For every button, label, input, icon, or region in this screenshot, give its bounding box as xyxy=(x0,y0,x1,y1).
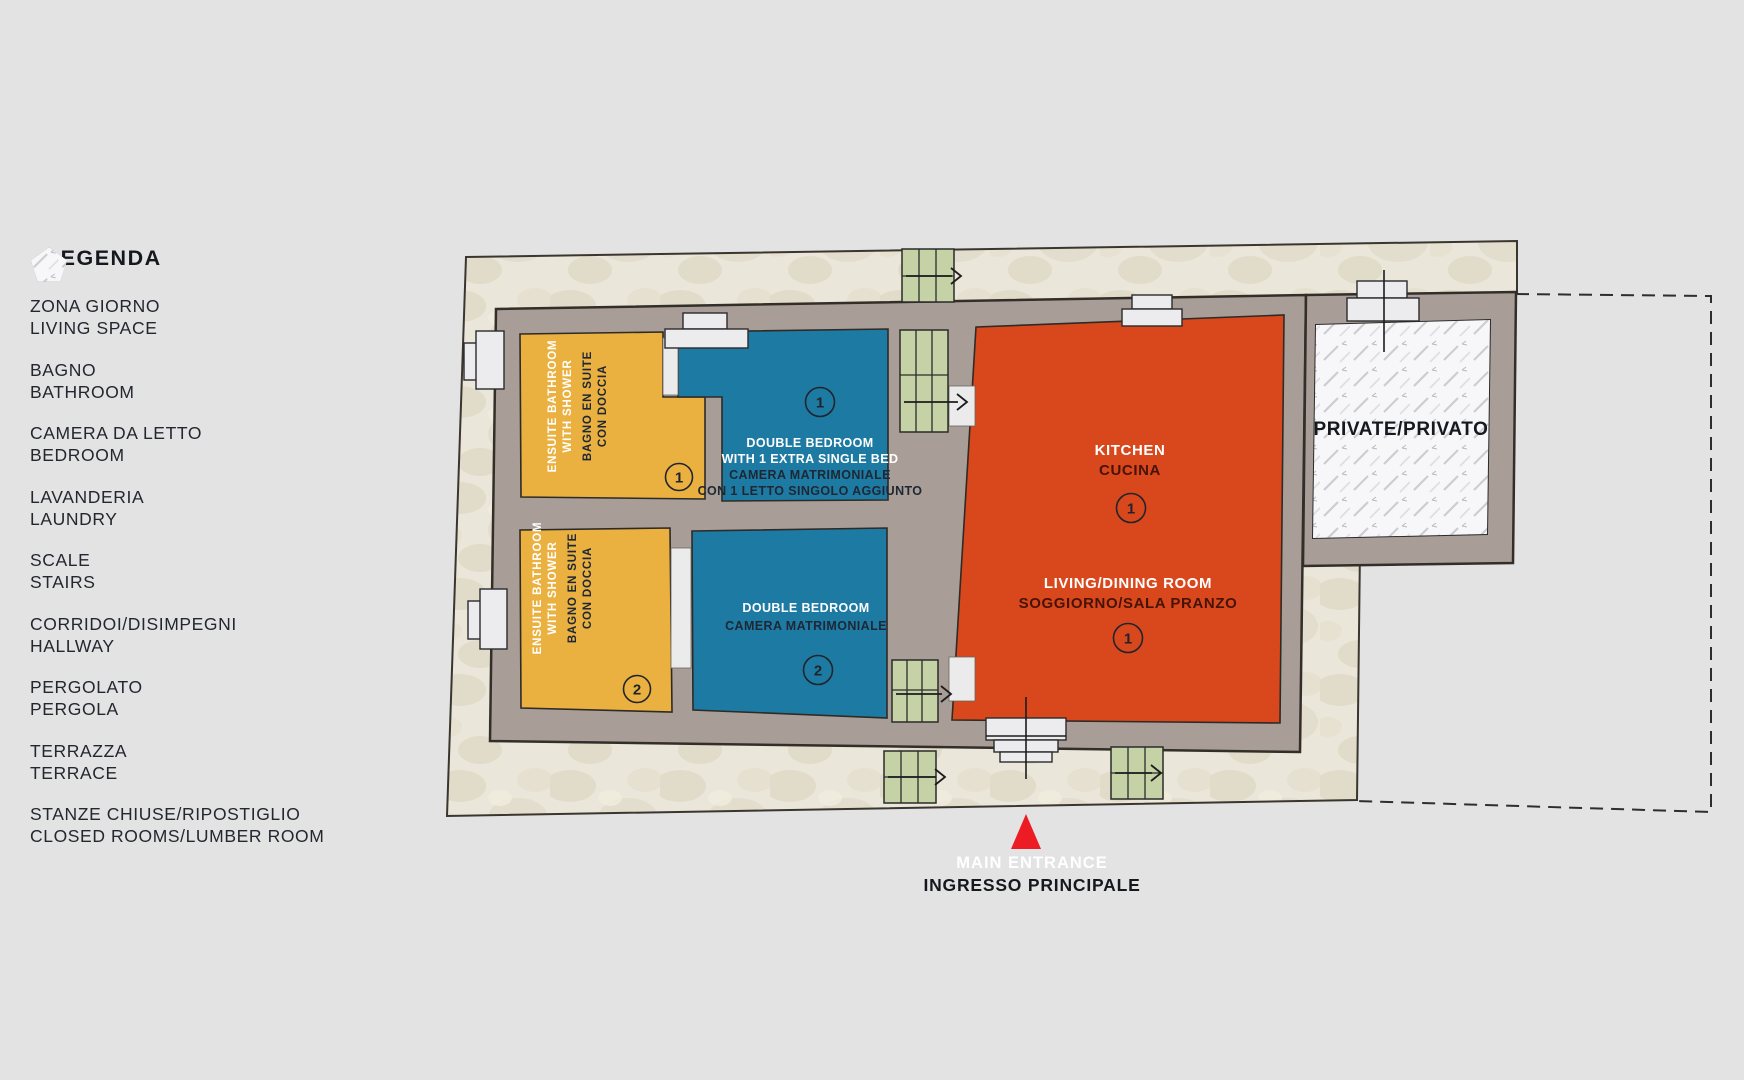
svg-text:BAGNO EN SUITE: BAGNO EN SUITE xyxy=(582,351,594,461)
legend-title: LEGENDA xyxy=(46,246,450,271)
legend-label-it: TERRAZZA xyxy=(30,740,127,762)
svg-text:1: 1 xyxy=(1127,501,1135,518)
legend-label-it: PERGOLATO xyxy=(30,676,143,698)
floorplan-page: ENSUITE BATHROOM WITH SHOWER BAGNO EN SU… xyxy=(0,0,1744,1080)
svg-text:CON 1 LETTO SINGOLO AGGIUNTO: CON 1 LETTO SINGOLO AGGIUNTO xyxy=(698,484,923,498)
legend-item-pergola: PERGOLATOPERGOLA xyxy=(30,676,450,720)
legend-label-it: LAVANDERIA xyxy=(30,486,144,508)
entrance-label-en: MAIN ENTRANCE xyxy=(956,854,1107,872)
entrance-label-it: INGRESSO PRINCIPALE xyxy=(923,875,1140,895)
svg-text:ENSUITE BATHROOM: ENSUITE BATHROOM xyxy=(532,522,544,655)
legend-item-living-space: ZONA GIORNOLIVING SPACE xyxy=(30,295,450,339)
svg-text:BAGNO EN SUITE: BAGNO EN SUITE xyxy=(567,533,579,643)
legend-label-en: TERRACE xyxy=(30,762,127,784)
room-label-private: PRIVATE/PRIVATO xyxy=(1313,419,1488,440)
svg-text:KITCHEN: KITCHEN xyxy=(1095,442,1166,459)
room-living-kitchen xyxy=(952,315,1284,723)
svg-text:SOGGIORNO/SALA PRANZO: SOGGIORNO/SALA PRANZO xyxy=(1019,595,1238,612)
svg-text:CUCINA: CUCINA xyxy=(1099,462,1161,479)
svg-text:LIVING/DINING ROOM: LIVING/DINING ROOM xyxy=(1044,575,1212,592)
svg-text:DOUBLE BEDROOM: DOUBLE BEDROOM xyxy=(742,601,869,615)
svg-text:CAMERA MATRIMONIALE: CAMERA MATRIMONIALE xyxy=(725,619,887,633)
legend-item-laundry: LAVANDERIALAUNDRY xyxy=(30,486,450,530)
svg-text:CON DOCCIA: CON DOCCIA xyxy=(597,365,609,447)
legend-item-stairs: SCALESTAIRS xyxy=(30,549,450,593)
svg-text:WITH SHOWER: WITH SHOWER xyxy=(562,359,574,452)
svg-text:DOUBLE BEDROOM: DOUBLE BEDROOM xyxy=(746,436,873,450)
legend-label-it: CAMERA DA LETTO xyxy=(30,422,202,444)
legend-panel: LEGENDA ZONA GIORNOLIVING SPACE BAGNOBAT… xyxy=(30,246,450,867)
legend-label-en: STAIRS xyxy=(30,571,96,593)
svg-text:CON DOCCIA: CON DOCCIA xyxy=(582,547,594,629)
svg-text:1: 1 xyxy=(816,395,824,412)
legend-label-it: STANZE CHIUSE/RIPOSTIGLIO xyxy=(30,803,324,825)
legend-label-en: HALLWAY xyxy=(30,635,237,657)
legend-label-en: LAUNDRY xyxy=(30,508,144,530)
stairs-exterior-bottom-left xyxy=(884,751,945,803)
legend-label-en: PERGOLA xyxy=(30,698,143,720)
legend-item-hallway: CORRIDOI/DISIMPEGNIHALLWAY xyxy=(30,613,450,657)
legend-item-closed-rooms: STANZE CHIUSE/RIPOSTIGLIOCLOSED ROOMS/LU… xyxy=(30,803,450,847)
door-gap-bath2-bed2 xyxy=(671,548,691,668)
legend-label-en: LIVING SPACE xyxy=(30,317,160,339)
door-gap-stairs2-living xyxy=(949,657,975,701)
stairs-exterior-bottom-right xyxy=(1111,747,1163,799)
svg-text:ENSUITE BATHROOM: ENSUITE BATHROOM xyxy=(547,340,559,473)
legend-item-bathroom: BAGNOBATHROOM xyxy=(30,359,450,403)
legend-label-it: CORRIDOI/DISIMPEGNI xyxy=(30,613,237,635)
legend-label-en: BATHROOM xyxy=(30,381,135,403)
svg-text:2: 2 xyxy=(633,682,641,699)
legend-item-bedroom: CAMERA DA LETTOBEDROOM xyxy=(30,422,450,466)
svg-text:WITH SHOWER: WITH SHOWER xyxy=(547,541,559,634)
legend-label-it: BAGNO xyxy=(30,359,135,381)
svg-text:1: 1 xyxy=(675,470,683,487)
pentagon-closed-rooms-icon xyxy=(30,246,68,283)
svg-text:2: 2 xyxy=(814,663,822,680)
stairs-exterior-top xyxy=(902,249,961,302)
legend-label-en: CLOSED ROOMS/LUMBER ROOM xyxy=(30,825,324,847)
legend-label-en: BEDROOM xyxy=(30,444,202,466)
legend-label-it: SCALE xyxy=(30,549,96,571)
legend-item-terrace: TERRAZZATERRACE xyxy=(30,740,450,784)
svg-text:WITH 1 EXTRA SINGLE BED: WITH 1 EXTRA SINGLE BED xyxy=(722,452,899,466)
legend-label-it: ZONA GIORNO xyxy=(30,295,160,317)
svg-text:CAMERA MATRIMONIALE: CAMERA MATRIMONIALE xyxy=(729,468,891,482)
svg-text:1: 1 xyxy=(1124,631,1132,648)
